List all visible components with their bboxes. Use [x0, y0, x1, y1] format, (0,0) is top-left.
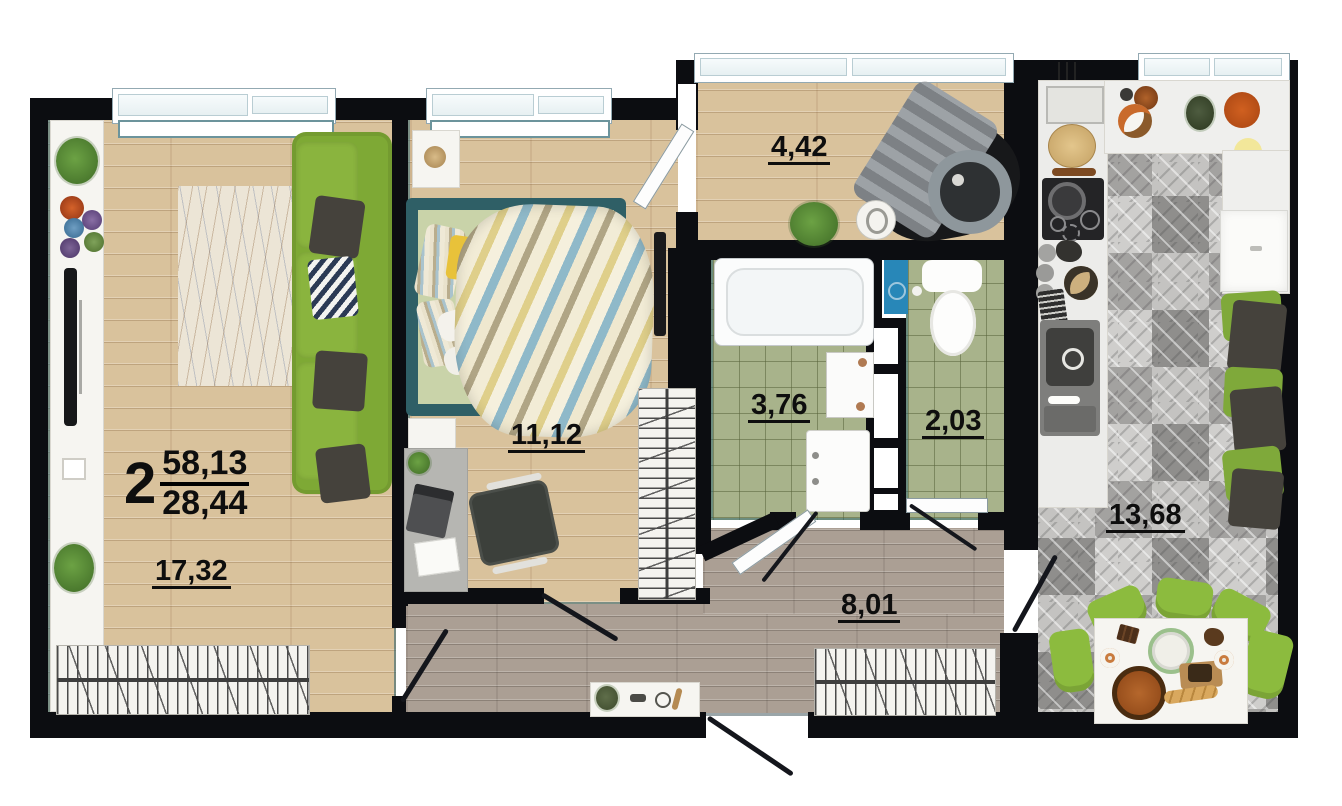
- wc-area-label: 2,03: [922, 406, 984, 439]
- gray-plate: [1038, 244, 1056, 262]
- bathroom-area-label: 3,76: [748, 390, 810, 423]
- chevron-pillow: [307, 256, 359, 320]
- wall-left: [30, 98, 48, 738]
- food-plate: [1118, 104, 1152, 138]
- wall-wc-kitchen: [1004, 250, 1038, 550]
- kitchen-faucet: [1062, 348, 1084, 370]
- herb-plant: [1186, 96, 1214, 130]
- bench-pillow-dark: [1228, 468, 1285, 530]
- ladder-shelf-box: [874, 328, 898, 364]
- bench-pillow-dark: [1226, 299, 1287, 374]
- duvet: [451, 202, 657, 441]
- window-pane: [852, 58, 1006, 76]
- pizza: [1112, 666, 1166, 720]
- wall-bath-bottom-3: [978, 512, 1006, 530]
- papers: [414, 537, 460, 577]
- moss-decor: [596, 686, 618, 710]
- decor-bowl: [84, 232, 104, 252]
- sink-drain: [856, 402, 865, 411]
- toilet-tank: [922, 260, 982, 292]
- area-fraction: 58,13 28,44: [160, 446, 249, 521]
- window-pane: [252, 96, 328, 114]
- living-room-wardrobe: [56, 645, 310, 715]
- bread-loaf: [1188, 664, 1212, 682]
- small-bowl: [1120, 88, 1133, 101]
- balcony-area-label: 4,42: [768, 132, 830, 165]
- counter-cabinet: [1046, 86, 1104, 124]
- room-count: 2: [124, 458, 156, 510]
- hallway-wardrobe: [814, 648, 996, 716]
- window-pane: [1214, 58, 1282, 76]
- decor-bowl: [64, 218, 84, 238]
- sofa-pillow: [312, 350, 368, 411]
- entrance-threshold: [706, 713, 808, 716]
- hanging-chair-hub: [952, 174, 964, 186]
- washing-machine-dot: [812, 478, 819, 485]
- desk-plant: [408, 452, 430, 474]
- toilet-bowl: [930, 290, 976, 356]
- dotted-plate: [1064, 266, 1098, 300]
- decor-bowl: [60, 196, 84, 220]
- hanging-chair-ring: [928, 150, 1012, 234]
- apartment-type-label: 2 58,13 28,44: [124, 446, 249, 521]
- living-room-area-label: 17,32: [152, 556, 231, 589]
- decor-frame: [62, 458, 86, 480]
- wall-balcony-bottom: [676, 240, 1038, 260]
- wood-bar: [1052, 168, 1096, 176]
- balcony-plant: [790, 202, 838, 246]
- burner: [1080, 210, 1100, 230]
- fridge: [1220, 210, 1288, 292]
- decor-bowl: [60, 238, 80, 258]
- decor-bowl: [82, 210, 102, 230]
- window-pane: [432, 94, 534, 116]
- gray-plate: [1036, 264, 1054, 282]
- sink-lower-handle: [1048, 396, 1080, 404]
- watering-can-handle: [866, 208, 888, 234]
- window-pane: [118, 94, 248, 116]
- bathtub-basin: [726, 268, 864, 336]
- window-pane: [700, 58, 847, 76]
- bench-pillow-dark: [1229, 386, 1286, 454]
- sink-base: [1044, 406, 1096, 432]
- bedroom-column: [668, 248, 698, 388]
- sofa-pillow: [315, 443, 371, 504]
- small-decor: [630, 694, 646, 702]
- tv: [64, 268, 77, 426]
- washing-machine-dot: [812, 452, 819, 459]
- window-pane: [1144, 58, 1210, 76]
- hallway-area-label: 8,01: [838, 590, 900, 623]
- bedroom-wardrobe: [638, 388, 696, 600]
- wall-bathroom-left: [696, 258, 711, 554]
- plant: [56, 138, 98, 184]
- plant: [54, 544, 94, 592]
- toilet-button: [912, 286, 922, 296]
- bedroom-tv: [654, 232, 666, 336]
- rug: [178, 186, 300, 386]
- washing-machine: [806, 430, 870, 512]
- total-area: 58,13: [160, 446, 249, 486]
- wall-living-hallway-a: [392, 600, 406, 628]
- entrance-door-leaf: [707, 715, 794, 776]
- sink-tap: [858, 358, 867, 367]
- living-area: 28,44: [160, 486, 249, 522]
- orange-bowl: [1224, 92, 1260, 128]
- star-anise: [1204, 628, 1224, 646]
- tv-stand: [79, 300, 82, 394]
- window-pane: [538, 96, 604, 114]
- floor-plan: 2 58,13 28,44 17,32 11,12 4,42 3,76 2,03…: [0, 0, 1342, 806]
- ladder-shelf-box: [874, 448, 898, 488]
- small-decor-ring: [655, 692, 671, 708]
- small-plate: [1100, 648, 1120, 668]
- nightstand-decor: [424, 146, 446, 168]
- bedroom-area-label: 11,12: [508, 420, 585, 453]
- small-plate: [1214, 650, 1234, 670]
- ladder-shelf-box: [874, 374, 898, 438]
- wall-kitchen-door-stub: [1000, 633, 1038, 715]
- dark-utensils: [1056, 240, 1082, 262]
- kitchen-area-label: 13,68: [1106, 500, 1185, 533]
- fridge-handle: [1250, 246, 1262, 251]
- cutting-board: [1048, 124, 1096, 168]
- wc-cabinet-ring: [888, 282, 906, 300]
- pendant-cords-icon: [1058, 62, 1080, 82]
- ladder-shelf-box: [874, 494, 898, 510]
- sofa-pillow: [308, 195, 366, 259]
